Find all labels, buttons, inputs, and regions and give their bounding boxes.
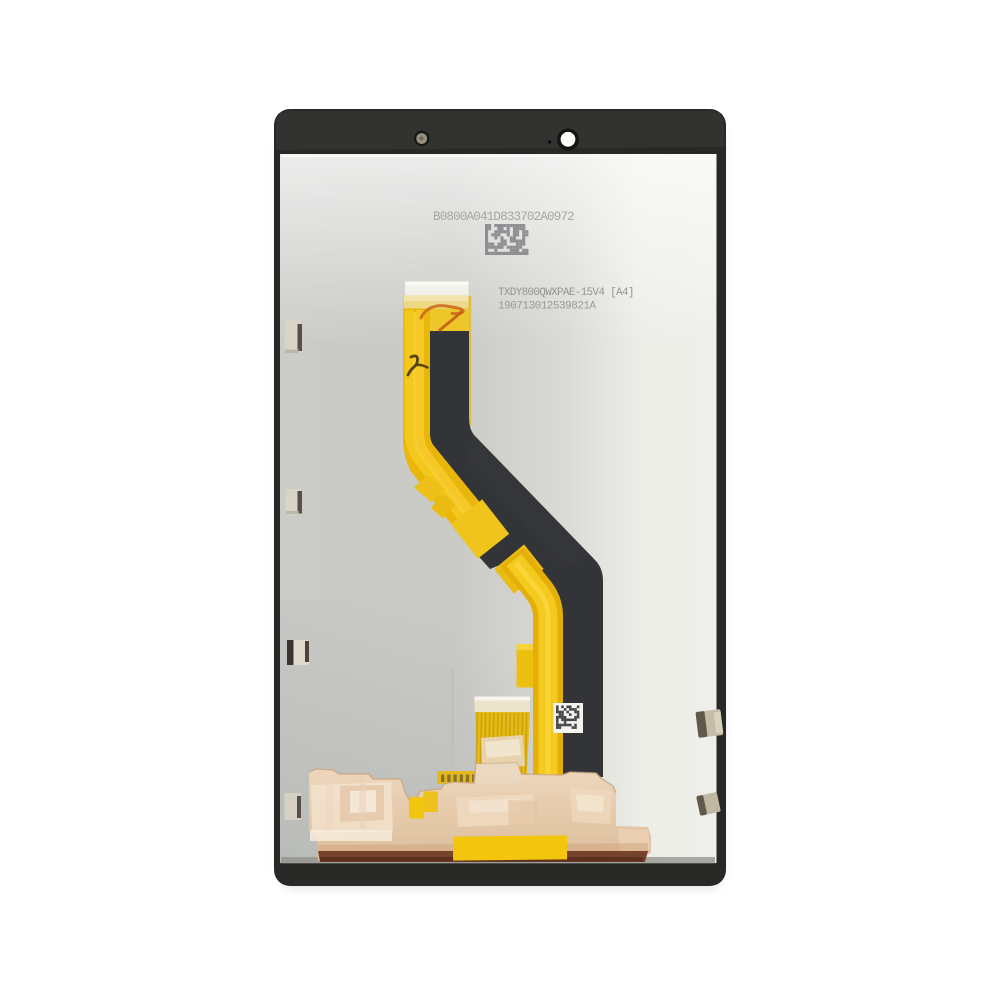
svg-text:TXDY800QWXPAE-15V4 [A4]: TXDY800QWXPAE-15V4 [A4] xyxy=(498,287,634,299)
svg-text:B0800A041D833702A0972: B0800A041D833702A0972 xyxy=(433,210,574,224)
svg-text:190713012539821A: 190713012539821A xyxy=(498,301,597,313)
